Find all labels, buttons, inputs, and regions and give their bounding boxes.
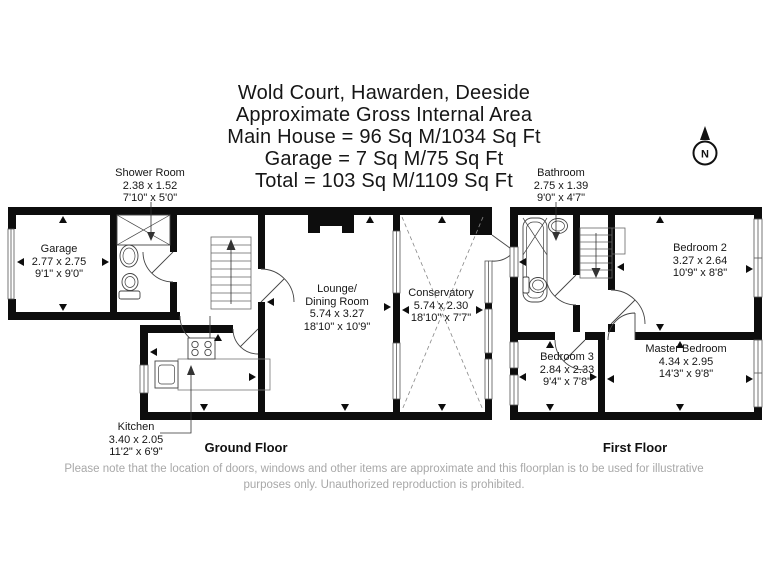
bathroom-label: Bathroom 2.75 x 1.39 9'0" x 4'7" — [534, 167, 588, 205]
stove-icon — [188, 338, 215, 359]
shower-room-label: Shower Room 2.38 x 1.52 7'10" x 5'0" — [115, 167, 185, 205]
ground-floor-title: Ground Floor — [204, 440, 287, 455]
shower-sink-icon — [120, 245, 138, 267]
kitchen-sink-icon — [155, 361, 178, 388]
north-compass-icon: N — [685, 120, 725, 170]
conservatory-label: Conservatory 5.74 x 2.30 18'10" x 7'7" — [408, 287, 473, 325]
bedroom-2-label: Bedroom 2 3.27 x 2.64 10'9" x 8'8" — [673, 242, 727, 280]
bathroom-toilet-icon — [523, 277, 547, 293]
first-floor-title: First Floor — [603, 440, 667, 455]
compass-north-letter: N — [701, 149, 709, 161]
stairs-down — [580, 228, 625, 278]
garage-label: Garage 2.77 x 2.75 9'1" x 9'0" — [32, 243, 86, 281]
title-address: Wold Court, Hawarden, Deeside — [0, 82, 768, 104]
fireplace-icon — [308, 215, 354, 233]
shower-icon — [117, 215, 170, 245]
master-bedroom-label: Master Bedroom 4.34 x 2.95 14'3" x 9'8" — [645, 343, 726, 381]
lounge-dining-label: Lounge/ Dining Room 5.74 x 3.27 18'10" x… — [304, 283, 370, 333]
bathroom-sink-icon — [549, 219, 568, 234]
kitchen-label: Kitchen 3.40 x 2.05 11'2" x 6'9" — [109, 421, 163, 459]
bedroom-3-label: Bedroom 3 2.84 x 2.33 9'4" x 7'8" — [540, 351, 594, 389]
disclaimer-line-2: purposes only. Unauthorized reproduction… — [0, 477, 768, 493]
disclaimer: Please note that the location of doors, … — [0, 461, 768, 493]
shower-toilet-icon — [119, 274, 140, 300]
stairs-up — [211, 237, 251, 309]
disclaimer-line-1: Please note that the location of doors, … — [0, 461, 768, 477]
title-subtitle: Approximate Gross Internal Area — [0, 104, 768, 126]
title-main-house: Main House = 96 Sq M/1034 Sq Ft — [0, 126, 768, 148]
floorplan-page: Wold Court, Hawarden, Deeside Approximat… — [0, 0, 768, 576]
